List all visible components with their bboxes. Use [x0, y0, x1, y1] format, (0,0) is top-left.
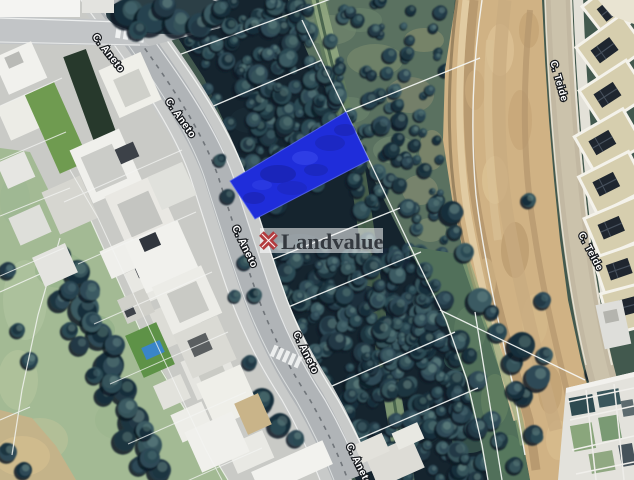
svg-text:Landvalue: Landvalue	[281, 229, 384, 254]
